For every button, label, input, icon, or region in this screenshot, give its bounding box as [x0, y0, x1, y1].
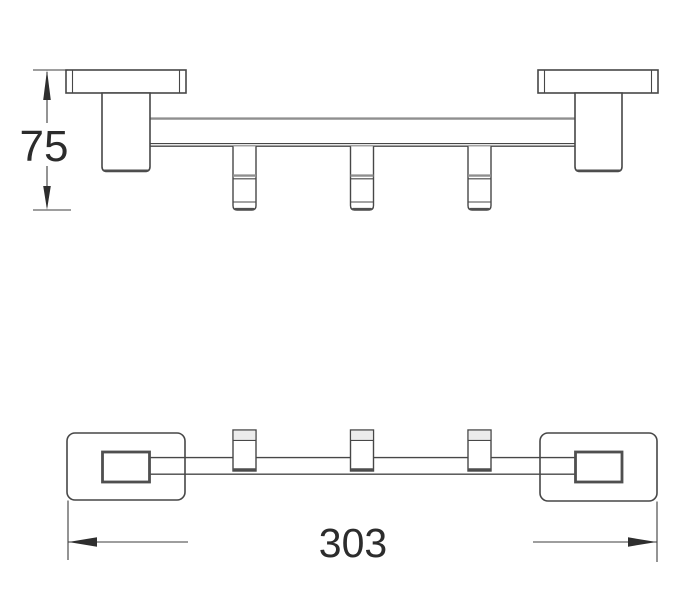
hook-body [233, 146, 256, 210]
hook-1-front [233, 146, 256, 210]
arrow-down-icon [43, 186, 51, 210]
left-wall-plate-rect [66, 70, 186, 93]
hook-section-shade [351, 431, 373, 440]
right-post-body [575, 93, 622, 172]
length-dimension: 303 [68, 501, 657, 567]
left-post-body [102, 93, 150, 172]
hook-1-plan [233, 430, 256, 471]
hook-body [351, 146, 374, 210]
hook-section-shade [234, 431, 256, 440]
rail-bar-front [150, 119, 575, 147]
left-post-section [103, 452, 150, 482]
technical-drawing-canvas: 75 [0, 0, 697, 600]
right-post-section [576, 452, 623, 482]
right-mount-post-front [575, 93, 622, 172]
right-wall-plate-rect [538, 70, 658, 93]
arrow-right-icon [628, 537, 657, 546]
hook-rail-drawing: 75 [0, 0, 697, 600]
left-wall-plate-front [66, 70, 186, 93]
hook-2-front [351, 146, 374, 210]
arrow-left-icon [68, 537, 97, 546]
front-elevation-view [66, 70, 658, 210]
top-plan-view [67, 430, 657, 501]
height-dimension-label: 75 [20, 122, 69, 171]
length-dimension-label: 303 [319, 520, 387, 566]
height-dimension: 75 [20, 70, 71, 210]
hook-3-plan [468, 430, 491, 471]
left-mount-post-front [102, 93, 150, 172]
arrow-up-icon [43, 70, 51, 100]
right-wall-plate-front [538, 70, 658, 93]
hook-section-shade [469, 431, 491, 440]
hook-body [468, 146, 491, 210]
hook-2-plan [351, 430, 374, 471]
hook-3-front [468, 146, 491, 210]
